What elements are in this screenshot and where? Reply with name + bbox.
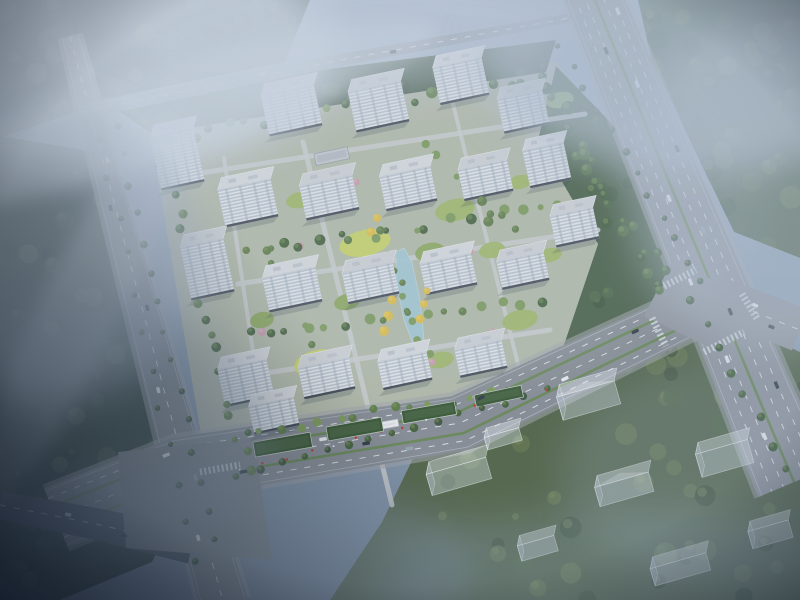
aerial-site-rendering bbox=[0, 0, 800, 600]
vignette-overlay bbox=[0, 0, 800, 600]
rendering-canvas bbox=[0, 0, 800, 600]
